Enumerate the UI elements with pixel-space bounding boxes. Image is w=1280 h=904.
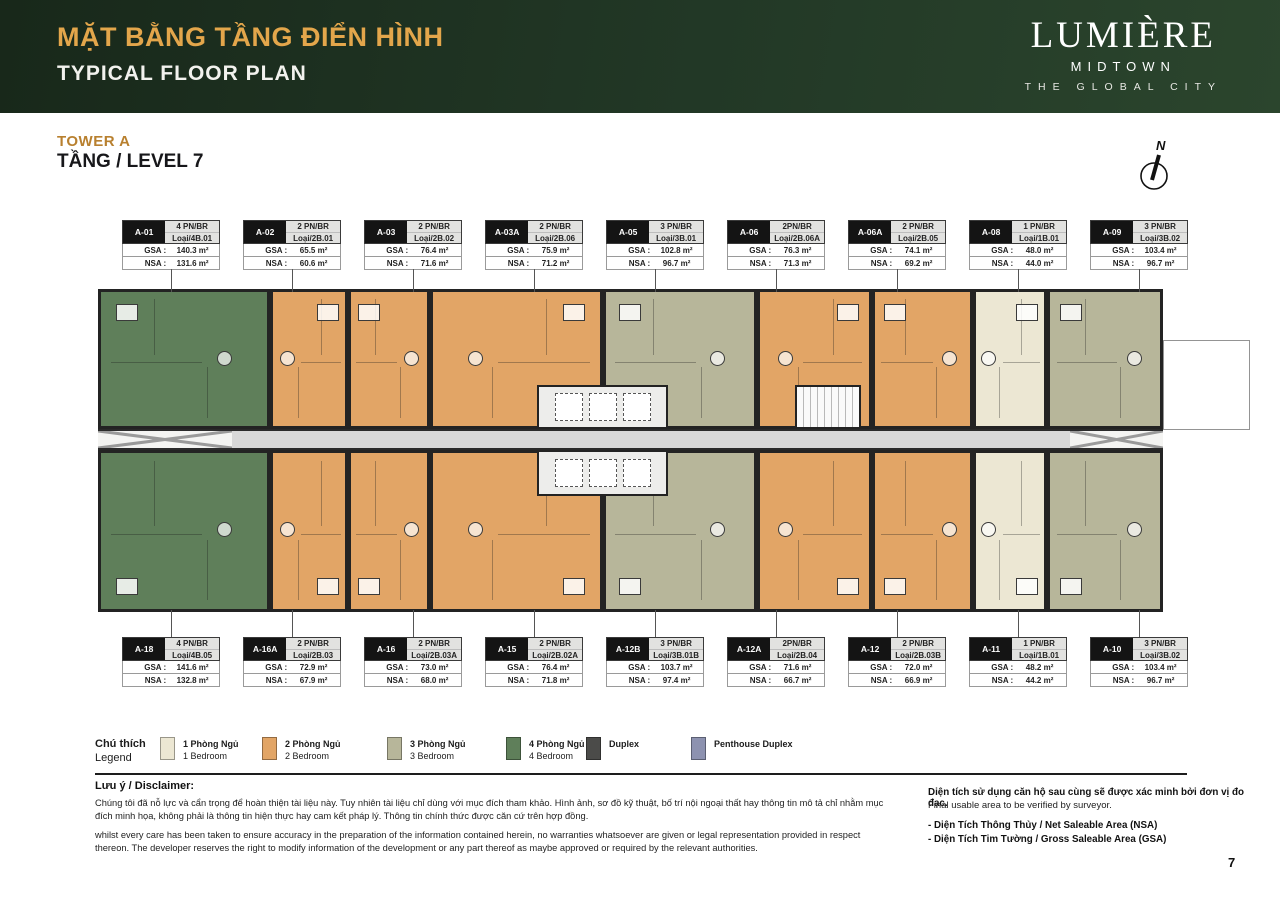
room-detail: [1021, 299, 1022, 355]
nsa-label: NSA :: [1091, 259, 1134, 268]
leader-line-A-09: [1139, 269, 1140, 292]
room-detail: [563, 304, 585, 321]
room-detail: [803, 534, 863, 535]
plan-unit-A-12B: [603, 450, 757, 612]
room-detail: [404, 351, 419, 366]
legend-swatch: [387, 737, 402, 760]
plan-unit-A-08: [973, 289, 1047, 429]
unit-info-table-A-06: A-06 2PN/BR Loại/2B.06A GSA : 76.3 m² NS…: [727, 220, 825, 270]
room-detail: [798, 540, 799, 599]
gsa-label: GSA :: [1091, 246, 1134, 255]
unit-id: A-01: [123, 221, 165, 243]
elevator-shaft: [589, 393, 617, 421]
nsa-label: NSA :: [607, 676, 650, 685]
area-note-en: Final usable area to be verified by surv…: [928, 800, 1258, 811]
room-detail: [298, 540, 299, 599]
room-detail: [111, 534, 202, 535]
room-detail: [999, 367, 1000, 418]
unit-type: 2 PN/BR: [286, 638, 340, 650]
room-detail: [356, 362, 398, 363]
gsa-label: GSA :: [849, 663, 892, 672]
unit-type: 3 PN/BR: [1133, 638, 1187, 650]
room-detail: [833, 461, 834, 527]
room-detail: [217, 522, 232, 537]
nsa-label: NSA :: [244, 259, 287, 268]
legend-item-2: 2 Phòng Ngủ 2 Bedroom: [262, 737, 341, 762]
unit-info-table-A-06A: A-06A 2 PN/BR Loại/2B.05 GSA : 74.1 m² N…: [848, 220, 946, 270]
unit-id: A-06: [728, 221, 770, 243]
unit-info-table-A-16: A-16 2 PN/BR Loại/2B.03A GSA : 73.0 m² N…: [364, 637, 462, 687]
gsa-value: 103.7 m²: [650, 663, 703, 672]
nsa-label: NSA :: [728, 259, 771, 268]
gsa-value: 141.6 m²: [166, 663, 219, 672]
gsa-value: 72.0 m²: [892, 663, 945, 672]
plan-unit-A-12: [872, 450, 973, 612]
unit-layout-code: Loại/3B.01: [649, 233, 703, 244]
unit-info-table-A-18: A-18 4 PN/BR Loại/4B.05 GSA : 141.6 m² N…: [122, 637, 220, 687]
plan-unit-A-02: [270, 289, 348, 429]
room-detail: [942, 351, 957, 366]
nsa-value: 44.2 m²: [1013, 676, 1066, 685]
central-corridor: [98, 429, 1163, 450]
unit-type: 2 PN/BR: [286, 221, 340, 233]
unit-info-table-A-10: A-10 3 PN/BR Loại/3B.02 GSA : 103.4 m² N…: [1090, 637, 1188, 687]
plan-unit-A-16: [348, 450, 430, 612]
leader-line-A-16A: [292, 610, 293, 637]
nsa-definition: - Diện Tích Thông Thủy / Net Saleable Ar…: [928, 820, 1258, 831]
unit-type: 3 PN/BR: [649, 221, 703, 233]
brand-name: LUMIÈRE: [1025, 14, 1222, 57]
room-detail: [468, 522, 483, 537]
gsa-definition: - Diện Tích Tim Tường / Gross Saleable A…: [928, 834, 1258, 845]
leader-line-A-11: [1018, 610, 1019, 637]
nsa-value: 71.6 m²: [408, 259, 461, 268]
leader-line-A-01: [171, 269, 172, 292]
nsa-label: NSA :: [123, 676, 166, 685]
tower-label: TOWER A: [57, 133, 131, 150]
room-detail: [905, 299, 906, 355]
room-detail: [498, 362, 590, 363]
unit-type: 2 PN/BR: [528, 221, 582, 233]
gsa-label: GSA :: [486, 663, 529, 672]
leader-line-A-12A: [776, 610, 777, 637]
plan-unit-A-12A: [757, 450, 872, 612]
elevator-core-top: [537, 385, 668, 429]
room-detail: [884, 578, 906, 595]
nsa-value: 96.7 m²: [1134, 676, 1187, 685]
gsa-value: 65.5 m²: [287, 246, 340, 255]
unit-layout-code: Loại/2B.02: [407, 233, 461, 244]
room-detail: [1060, 578, 1082, 595]
room-detail: [468, 351, 483, 366]
nsa-label: NSA :: [849, 259, 892, 268]
room-detail: [1057, 362, 1118, 363]
nsa-value: 69.2 m²: [892, 259, 945, 268]
room-detail: [1120, 540, 1121, 599]
corridor-hatch-left: [98, 431, 232, 448]
gsa-value: 75.9 m²: [529, 246, 582, 255]
elevator-shaft: [623, 393, 651, 421]
nsa-value: 71.2 m²: [529, 259, 582, 268]
gsa-value: 76.4 m²: [529, 663, 582, 672]
nsa-value: 66.9 m²: [892, 676, 945, 685]
room-detail: [1120, 367, 1121, 418]
room-detail: [116, 578, 138, 595]
unit-layout-code: Loại/2B.03: [286, 650, 340, 661]
nsa-label: NSA :: [607, 259, 650, 268]
nsa-value: 60.6 m²: [287, 259, 340, 268]
legend-item-1: 1 Phòng Ngủ 1 Bedroom: [160, 737, 239, 762]
unit-info-table-A-12A: A-12A 2PN/BR Loại/2B.04 GSA : 71.6 m² NS…: [727, 637, 825, 687]
legend-label-en: 2 Bedroom: [285, 750, 341, 762]
legend-label-vi: 4 Phòng Ngủ: [529, 738, 585, 750]
legend-label-vi: 3 Phòng Ngủ: [410, 738, 466, 750]
room-detail: [653, 299, 654, 355]
gsa-label: GSA :: [244, 663, 287, 672]
room-detail: [798, 367, 799, 418]
nsa-label: NSA :: [728, 676, 771, 685]
room-detail: [710, 522, 725, 537]
leader-line-A-15: [534, 610, 535, 637]
corridor-hatch-right: [1070, 431, 1163, 448]
room-detail: [905, 461, 906, 527]
unit-layout-code: Loại/3B.01B: [649, 650, 703, 661]
elevator-core-bottom: [537, 450, 668, 496]
unit-id: A-16A: [244, 638, 286, 660]
legend-swatch: [586, 737, 601, 760]
unit-id: A-03A: [486, 221, 528, 243]
nsa-value: 44.0 m²: [1013, 259, 1066, 268]
leader-line-A-02: [292, 269, 293, 292]
unit-type: 2 PN/BR: [891, 638, 945, 650]
room-detail: [498, 534, 590, 535]
unit-info-table-A-03: A-03 2 PN/BR Loại/2B.02 GSA : 76.4 m² NS…: [364, 220, 462, 270]
nsa-label: NSA :: [486, 676, 529, 685]
gsa-label: GSA :: [970, 663, 1013, 672]
unit-type: 3 PN/BR: [1133, 221, 1187, 233]
unit-type: 1 PN/BR: [1012, 638, 1066, 650]
room-detail: [837, 304, 859, 321]
nsa-value: 132.8 m²: [166, 676, 219, 685]
gsa-value: 102.8 m²: [650, 246, 703, 255]
unit-info-table-A-08: A-08 1 PN/BR Loại/1B.01 GSA : 48.0 m² NS…: [969, 220, 1067, 270]
gsa-value: 76.4 m²: [408, 246, 461, 255]
legend-label-vi: 2 Phòng Ngủ: [285, 738, 341, 750]
room-detail: [217, 351, 232, 366]
unit-id: A-15: [486, 638, 528, 660]
room-detail: [936, 540, 937, 599]
legend-item-duplex: Duplex: [586, 737, 639, 760]
unit-id: A-12: [849, 638, 891, 660]
unit-layout-code: Loại/2B.05: [891, 233, 945, 244]
gsa-value: 73.0 m²: [408, 663, 461, 672]
unit-info-table-A-09: A-09 3 PN/BR Loại/3B.02 GSA : 103.4 m² N…: [1090, 220, 1188, 270]
room-detail: [981, 522, 996, 537]
leader-line-A-18: [171, 610, 172, 637]
leader-line-A-12B: [655, 610, 656, 637]
leader-line-A-08: [1018, 269, 1019, 292]
page-title-en: TYPICAL FLOOR PLAN: [57, 62, 443, 86]
room-detail: [546, 299, 547, 355]
room-detail: [1003, 534, 1040, 535]
leader-line-A-03: [413, 269, 414, 292]
nsa-value: 96.7 m²: [650, 259, 703, 268]
room-detail: [356, 534, 398, 535]
room-detail: [492, 540, 493, 599]
unit-layout-code: Loại/2B.03A: [407, 650, 461, 661]
unit-id: A-05: [607, 221, 649, 243]
room-detail: [546, 461, 547, 527]
room-detail: [701, 367, 702, 418]
disclaimer-text-en: whilst every care has been taken to ensu…: [95, 829, 890, 855]
leader-line-A-06: [776, 269, 777, 292]
unit-layout-code: Loại/4B.05: [165, 650, 219, 661]
legend-label-en: 4 Bedroom: [529, 750, 585, 762]
unit-type: 2PN/BR: [770, 221, 824, 233]
unit-type: 1 PN/BR: [1012, 221, 1066, 233]
nsa-label: NSA :: [970, 676, 1013, 685]
room-detail: [301, 534, 341, 535]
room-detail: [280, 351, 295, 366]
elevator-shaft: [623, 459, 651, 487]
stair-core: [795, 385, 861, 429]
unit-id: A-09: [1091, 221, 1133, 243]
legend-item-3: 3 Phòng Ngủ 3 Bedroom: [387, 737, 466, 762]
room-detail: [833, 299, 834, 355]
plan-unit-A-05: [603, 289, 757, 429]
leader-line-A-03A: [534, 269, 535, 292]
gsa-value: 48.2 m²: [1013, 663, 1066, 672]
brand-logo: LUMIÈRE MIDTOWN THE GLOBAL CITY: [1025, 14, 1222, 93]
leader-line-A-06A: [897, 269, 898, 292]
room-detail: [778, 522, 793, 537]
room-detail: [881, 362, 933, 363]
room-detail: [375, 461, 376, 527]
nsa-value: 96.7 m²: [1134, 259, 1187, 268]
nsa-label: NSA :: [849, 676, 892, 685]
legend-item-4: 4 Phòng Ngủ 4 Bedroom: [506, 737, 585, 762]
unit-type: 4 PN/BR: [165, 638, 219, 650]
gsa-value: 103.4 m²: [1134, 246, 1187, 255]
unit-layout-code: Loại/2B.02A: [528, 650, 582, 661]
nsa-value: 71.3 m²: [771, 259, 824, 268]
nsa-value: 71.8 m²: [529, 676, 582, 685]
north-compass-icon: N: [1132, 138, 1182, 196]
unit-id: A-18: [123, 638, 165, 660]
unit-info-table-A-11: A-11 1 PN/BR Loại/1B.01 GSA : 48.2 m² NS…: [969, 637, 1067, 687]
room-detail: [1127, 522, 1142, 537]
room-detail: [701, 540, 702, 599]
leader-line-A-12: [897, 610, 898, 637]
unit-type: 2 PN/BR: [407, 221, 461, 233]
nsa-label: NSA :: [123, 259, 166, 268]
room-detail: [615, 362, 696, 363]
unit-type: 2 PN/BR: [407, 638, 461, 650]
legend-title-en: Legend: [95, 751, 146, 765]
unit-info-table-A-01: A-01 4 PN/BR Loại/4B.01 GSA : 140.3 m² N…: [122, 220, 220, 270]
room-detail: [207, 540, 208, 599]
room-detail: [615, 534, 696, 535]
gsa-label: GSA :: [365, 663, 408, 672]
legend-swatch: [506, 737, 521, 760]
room-detail: [884, 304, 906, 321]
gsa-label: GSA :: [244, 246, 287, 255]
unit-layout-code: Loại/2B.01: [286, 233, 340, 244]
legend-item-penthouse: Penthouse Duplex: [691, 737, 793, 760]
unit-layout-code: Loại/3B.02: [1133, 650, 1187, 661]
gsa-value: 48.0 m²: [1013, 246, 1066, 255]
room-detail: [1016, 304, 1038, 321]
gsa-label: GSA :: [1091, 663, 1134, 672]
room-detail: [154, 461, 155, 527]
unit-layout-code: Loại/1B.01: [1012, 233, 1066, 244]
unit-layout-code: Loại/2B.06A: [770, 233, 824, 244]
annex-outline: [1163, 340, 1250, 430]
gsa-value: 72.9 m²: [287, 663, 340, 672]
unit-id: A-03: [365, 221, 407, 243]
leader-line-A-16: [413, 610, 414, 637]
plan-unit-A-06A: [872, 289, 973, 429]
gsa-label: GSA :: [970, 246, 1013, 255]
unit-id: A-06A: [849, 221, 891, 243]
gsa-label: GSA :: [486, 246, 529, 255]
room-detail: [111, 362, 202, 363]
room-detail: [999, 540, 1000, 599]
nsa-value: 131.6 m²: [166, 259, 219, 268]
nsa-label: NSA :: [970, 259, 1013, 268]
room-detail: [653, 461, 654, 527]
gsa-value: 74.1 m²: [892, 246, 945, 255]
unit-info-table-A-15: A-15 2 PN/BR Loại/2B.02A GSA : 76.4 m² N…: [485, 637, 583, 687]
plan-unit-A-11: [973, 450, 1047, 612]
gsa-label: GSA :: [849, 246, 892, 255]
unit-info-table-A-16A: A-16A 2 PN/BR Loại/2B.03 GSA : 72.9 m² N…: [243, 637, 341, 687]
gsa-label: GSA :: [123, 246, 166, 255]
room-detail: [280, 522, 295, 537]
room-detail: [1057, 534, 1118, 535]
plan-unit-A-09: [1047, 289, 1163, 429]
plan-unit-A-18: [98, 450, 270, 612]
room-detail: [207, 367, 208, 418]
unit-info-table-A-12: A-12 2 PN/BR Loại/2B.03B GSA : 72.0 m² N…: [848, 637, 946, 687]
elevator-shaft: [589, 459, 617, 487]
room-detail: [837, 578, 859, 595]
room-detail: [404, 522, 419, 537]
room-detail: [375, 299, 376, 355]
unit-type: 2PN/BR: [770, 638, 824, 650]
nsa-value: 68.0 m²: [408, 676, 461, 685]
room-detail: [116, 304, 138, 321]
room-detail: [619, 304, 641, 321]
unit-info-table-A-05: A-05 3 PN/BR Loại/3B.01 GSA : 102.8 m² N…: [606, 220, 704, 270]
room-detail: [942, 522, 957, 537]
plan-unit-A-01: [98, 289, 270, 429]
unit-id: A-12A: [728, 638, 770, 660]
leader-line-A-05: [655, 269, 656, 292]
room-detail: [1016, 578, 1038, 595]
legend-title-vi: Chú thích: [95, 737, 146, 751]
room-detail: [981, 351, 996, 366]
room-detail: [563, 578, 585, 595]
unit-type: 4 PN/BR: [165, 221, 219, 233]
plan-unit-A-16A: [270, 450, 348, 612]
footer-divider: [95, 773, 1187, 775]
legend-label-en: 1 Bedroom: [183, 750, 239, 762]
brand-subtitle: MIDTOWN: [1025, 59, 1222, 74]
room-detail: [619, 578, 641, 595]
unit-info-table-A-02: A-02 2 PN/BR Loại/2B.01 GSA : 65.5 m² NS…: [243, 220, 341, 270]
room-detail: [317, 578, 339, 595]
gsa-label: GSA :: [365, 246, 408, 255]
unit-id: A-10: [1091, 638, 1133, 660]
gsa-value: 103.4 m²: [1134, 663, 1187, 672]
unit-id: A-08: [970, 221, 1012, 243]
nsa-label: NSA :: [244, 676, 287, 685]
elevator-shaft: [555, 393, 583, 421]
room-detail: [881, 534, 933, 535]
room-detail: [778, 351, 793, 366]
room-detail: [1127, 351, 1142, 366]
room-detail: [1021, 461, 1022, 527]
legend-swatch: [262, 737, 277, 760]
brand-tagline: THE GLOBAL CITY: [1025, 81, 1222, 93]
nsa-label: NSA :: [1091, 676, 1134, 685]
elevator-shaft: [555, 459, 583, 487]
legend-label-vi: Duplex: [609, 738, 639, 750]
compass-north-label: N: [1156, 138, 1165, 153]
unit-id: A-16: [365, 638, 407, 660]
gsa-label: GSA :: [123, 663, 166, 672]
room-detail: [154, 299, 155, 355]
gsa-label: GSA :: [728, 663, 771, 672]
unit-type: 2 PN/BR: [891, 221, 945, 233]
room-detail: [400, 367, 401, 418]
room-detail: [1085, 461, 1086, 527]
legend-swatch: [691, 737, 706, 760]
room-detail: [317, 304, 339, 321]
legend-label-en: 3 Bedroom: [410, 750, 466, 762]
room-detail: [1060, 304, 1082, 321]
room-detail: [492, 367, 493, 418]
room-detail: [321, 299, 322, 355]
unit-info-table-A-12B: A-12B 3 PN/BR Loại/3B.01B GSA : 103.7 m²…: [606, 637, 704, 687]
unit-layout-code: Loại/2B.04: [770, 650, 824, 661]
gsa-value: 76.3 m²: [771, 246, 824, 255]
unit-id: A-11: [970, 638, 1012, 660]
header-band: MẶT BẰNG TẦNG ĐIỂN HÌNH TYPICAL FLOOR PL…: [0, 0, 1280, 113]
legend-title: Chú thích Legend: [95, 737, 146, 765]
gsa-label: GSA :: [607, 663, 650, 672]
plan-unit-A-06: [757, 289, 872, 429]
floor-plan-page: MẶT BẰNG TẦNG ĐIỂN HÌNH TYPICAL FLOOR PL…: [0, 0, 1280, 904]
legend-label-vi: 1 Phòng Ngủ: [183, 738, 239, 750]
room-detail: [400, 540, 401, 599]
room-detail: [321, 461, 322, 527]
unit-info-table-A-03A: A-03A 2 PN/BR Loại/2B.06 GSA : 75.9 m² N…: [485, 220, 583, 270]
unit-layout-code: Loại/3B.02: [1133, 233, 1187, 244]
plan-unit-A-15: [430, 450, 603, 612]
unit-id: A-12B: [607, 638, 649, 660]
room-detail: [358, 304, 380, 321]
disclaimer-text-vi: Chúng tôi đã nỗ lực và cẩn trọng để hoàn…: [95, 797, 890, 823]
room-detail: [936, 367, 937, 418]
unit-id: A-02: [244, 221, 286, 243]
nsa-label: NSA :: [365, 259, 408, 268]
nsa-value: 67.9 m²: [287, 676, 340, 685]
unit-layout-code: Loại/1B.01: [1012, 650, 1066, 661]
unit-layout-code: Loại/2B.06: [528, 233, 582, 244]
gsa-label: GSA :: [728, 246, 771, 255]
